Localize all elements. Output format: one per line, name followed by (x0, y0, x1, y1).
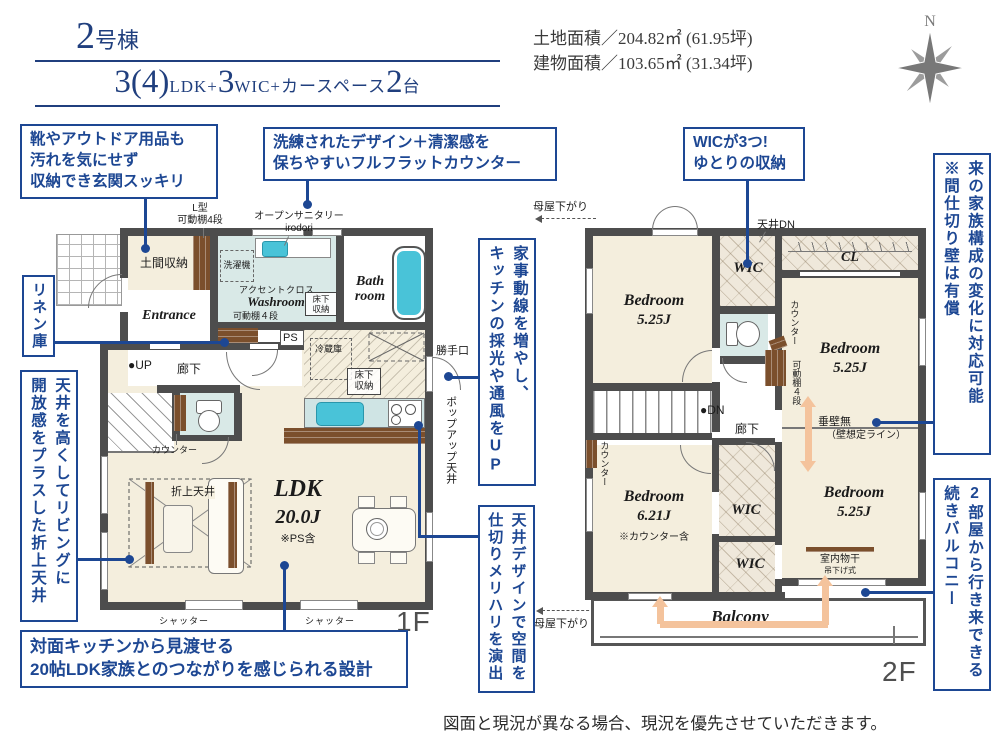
connector-dot (743, 259, 752, 268)
moya-arrow-head (535, 215, 542, 223)
callout-oriage: 天井を高くしてリビングに 開放感をプラスした折上天井 (20, 370, 78, 622)
connector-dot (861, 588, 870, 597)
low-table (163, 505, 193, 553)
summary-car-count: 2 (386, 64, 403, 100)
doma-label: 土間収納 (140, 257, 188, 271)
leader-line (176, 434, 177, 445)
wall-segment (585, 433, 712, 440)
lshape-shelf-label: L型 可動棚4段 (168, 203, 232, 226)
open-sanitary-label: オープンサニタリー irodori (253, 211, 345, 234)
shutter-window (185, 600, 243, 610)
wic-low-label: WIC (726, 556, 774, 573)
bedroom2-size: 5.25J (806, 360, 894, 377)
washroom-label: Washroom (236, 295, 316, 309)
summary-rooms: 3(4) (114, 64, 169, 100)
land-area: 土地面積／204.82㎡ (61.95坪) (533, 29, 753, 48)
bedroom1-label: Bedroom (610, 292, 698, 310)
wall-segment (585, 228, 926, 236)
ceiling-dn-label: 天井DN (757, 219, 795, 232)
callout-counter: 洗練されたデザイン＋清潔感を 保ちやすいフルフラットカウンター (263, 127, 557, 181)
bedroom2-label: Bedroom (806, 340, 894, 358)
stairs-up-label: ●UP (128, 359, 152, 373)
top-window-arc (652, 206, 698, 230)
connector (451, 376, 478, 379)
arrow-head-up (817, 575, 833, 586)
balcony-flow-arrow (657, 606, 664, 624)
connector (866, 591, 935, 594)
moya-label-bottom: 母屋下がり (534, 618, 589, 631)
layout-summary: 3(4)LDK+3WIC+カースペース2台 (35, 60, 500, 107)
dining-chair (390, 496, 407, 508)
wall-segment (712, 536, 782, 542)
balcony-door-opening (798, 579, 886, 586)
connector-dot (303, 200, 312, 209)
dining-chair (390, 552, 407, 564)
underfloor-storage-label2: 床下 収納 (347, 368, 381, 395)
shelf4-2f-label: 可動棚４段 (791, 360, 801, 418)
wall-segment (234, 393, 242, 435)
wall-segment (210, 236, 218, 342)
connector-dot (444, 372, 453, 381)
connector (418, 428, 421, 538)
bathroom-label: Bath room (344, 274, 396, 305)
wall-segment (120, 228, 128, 278)
window (101, 532, 108, 590)
door-opening (775, 545, 782, 579)
wall-option-arrow (805, 406, 812, 462)
window (586, 268, 593, 314)
connector-dot (414, 421, 423, 430)
connector (746, 179, 749, 263)
callout-tsuzuki: 2部屋から行き来できる 続きバルコニー (933, 478, 991, 691)
balcony-flow-arrow (660, 621, 828, 628)
balcony-flow-arrow (822, 585, 829, 625)
leader-line (203, 228, 204, 238)
entrance-label: Entrance (132, 308, 206, 323)
back-door-opening (426, 356, 433, 392)
callout-tenjo: 天井デザインで空間を 仕切りメリハリを演出 (478, 505, 535, 693)
callout-linen: リネン庫 (22, 275, 55, 357)
ldk-note-label: ※PS含 (262, 533, 334, 546)
ps-label: PS (283, 332, 298, 345)
moya-arrow-head (536, 607, 543, 615)
connector-dot (125, 555, 134, 564)
washer-label: 洗濯機 (221, 260, 253, 270)
closet-sliding-opening (800, 272, 900, 276)
stove-burner (391, 404, 402, 415)
counter-right-label: カウンター (789, 300, 799, 356)
stairs-dn-label: ●DN (700, 404, 725, 418)
summary-wic-count: 3 (218, 64, 235, 100)
wall-segment (712, 306, 775, 314)
tv-board (145, 482, 154, 564)
cl-label: CL (832, 250, 868, 265)
bedroom3-label: Bedroom (810, 484, 898, 502)
ldk-size-label: 20.0J (262, 506, 334, 528)
backdoor-label: 勝手口 (436, 345, 469, 358)
counter-2f-left (586, 440, 597, 468)
wall-segment (585, 383, 720, 391)
building-number-suffix: 号棟 (95, 28, 139, 53)
shoe-shelf (193, 236, 210, 290)
counter-left-label: カウンター (599, 441, 609, 497)
drying-bar (806, 547, 874, 552)
disclaimer-text: 図面と現況が異なる場合、現況を優先させていただきます。 (443, 710, 887, 734)
floor-label-2f: 2F (882, 656, 917, 688)
door-opening (775, 410, 782, 442)
wall-segment (336, 236, 344, 324)
summary-car-unit: 台 (403, 77, 421, 96)
stairs-1f (108, 393, 174, 453)
connector (72, 558, 129, 561)
kitchen-front-strip (284, 428, 425, 444)
compass-north-letter: N (924, 13, 936, 30)
folded-ceiling-label: 折上天井 (171, 486, 215, 499)
connector-dot (872, 418, 881, 427)
connector (418, 535, 478, 538)
window (652, 229, 698, 236)
window (919, 492, 926, 540)
hall-2f-label: 廊下 (735, 423, 759, 437)
callout-kaji: 家事動線を増やし、 キッチンの採光や通風をUP (478, 238, 536, 486)
drying-type-label: 吊下げ式 (816, 566, 864, 575)
floorplan-flyer: 2号棟 3(4)LDK+3WIC+カースペース2台 土地面積／204.82㎡ (… (0, 0, 1000, 750)
kabesotei-label: （壁想定ライン） (826, 430, 906, 442)
bedroom4-size: 6.21J (610, 508, 698, 525)
bedroom4-label: Bedroom (610, 488, 698, 506)
balcony-divider (893, 626, 895, 644)
moya-arrow-top (541, 218, 596, 219)
summary-wic-car: WIC+カースペース (234, 77, 386, 96)
shutter-window (300, 600, 358, 610)
wall-segment (585, 592, 785, 600)
shutter-label: シャッター (152, 616, 216, 626)
plate-icon (366, 518, 388, 540)
callout-genkan: 靴やアウトドア用品も 汚れを気にせず 収納でき玄関スッキリ (20, 124, 218, 199)
underfloor-storage-label: 床下 収納 (305, 292, 337, 316)
door-opening (712, 492, 719, 534)
drying-label: 室内物干 (812, 554, 868, 566)
dining-chair (358, 552, 375, 564)
hall-label: 廊下 (177, 363, 201, 377)
kitchen-sink (316, 402, 364, 426)
bathtub (392, 246, 426, 320)
arrow-head-down (800, 461, 816, 472)
sofa-back (228, 482, 237, 568)
building-title: 2号棟 (76, 14, 139, 58)
moya-label-top: 母屋下がり (533, 201, 588, 214)
window (919, 318, 926, 366)
pantry-x-box (368, 332, 425, 362)
stairs-2f (593, 391, 712, 433)
connector-dot (280, 561, 289, 570)
tarekabe-label: 垂壁無 (818, 416, 851, 429)
stove-burner (405, 404, 416, 415)
summary-ldk: LDK+ (169, 77, 218, 96)
area-info: 土地面積／204.82㎡ (61.95坪)建物面積／103.65㎡ (31.34… (533, 26, 753, 76)
building-number: 2 (76, 15, 95, 57)
toilet-counter-1f (174, 395, 186, 431)
connector (144, 196, 147, 248)
connector-dot (141, 244, 150, 253)
wic-mid-label: WIC (720, 502, 772, 519)
bedroom3-size: 5.25J (810, 504, 898, 521)
fridge-label: 冷蔵庫 (315, 344, 342, 354)
balcony-rail-inner (600, 636, 918, 638)
bedroom1-size: 5.25J (610, 312, 698, 329)
callout-partition: 来の家族構成の変化に対応可能 ※間仕切り壁は有償 (933, 153, 991, 455)
window (586, 478, 593, 532)
building-area: 建物面積／103.65㎡ (31.34坪) (533, 54, 753, 73)
shutter-label: シャッター (298, 616, 362, 626)
shelf-2f (765, 350, 786, 386)
callout-wic: WICが3つ! ゆとりの収納 (683, 127, 805, 181)
door-opening (712, 348, 720, 382)
connector-dot (220, 338, 229, 347)
door-opening (250, 344, 278, 349)
shelf4-label: 可動棚４段 (233, 311, 278, 321)
arrow-head-up (652, 596, 668, 607)
bedroom4-note: ※カウンター含 (606, 532, 702, 544)
wall-segment (100, 602, 433, 610)
arrow-head-up (800, 396, 816, 407)
connector (283, 565, 286, 630)
callout-taimen: 対面キッチンから見渡せる 20帖LDK家族とのつながりを感じられる設計 (20, 630, 408, 688)
toilet-fixture-1f-bowl (198, 410, 220, 432)
moya-arrow-bottom (542, 610, 594, 611)
ldk-label: LDK (262, 476, 334, 502)
door-opening (150, 344, 180, 349)
connector (50, 341, 226, 344)
window (101, 456, 108, 514)
wall-segment (157, 385, 240, 393)
toilet-counter-label: カウンター (152, 445, 197, 455)
dining-chair (358, 496, 375, 508)
stove-burner (391, 415, 401, 425)
compass-icon: N (893, 8, 967, 108)
connector (878, 421, 935, 424)
popup-ceiling-label: ポップアップ天井 (444, 396, 457, 506)
toilet-fixture-2f-bowl (736, 321, 760, 347)
